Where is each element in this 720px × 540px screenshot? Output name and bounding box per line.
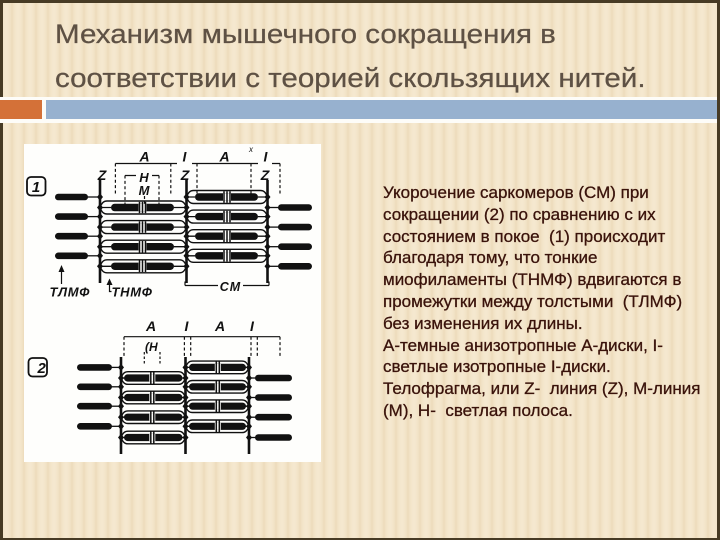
svg-text:I: I — [264, 149, 269, 165]
svg-text:(Н: (Н — [145, 340, 158, 354]
svg-text:x: x — [248, 145, 254, 154]
svg-text:А: А — [218, 149, 229, 165]
svg-text:2: 2 — [37, 360, 47, 377]
svg-text:Z: Z — [97, 167, 107, 183]
svg-text:А: А — [214, 318, 225, 334]
svg-text:ТЛМФ: ТЛМФ — [50, 285, 91, 300]
svg-text:I: I — [250, 318, 255, 334]
svg-text:I: I — [183, 149, 188, 165]
svg-text:М: М — [139, 183, 151, 198]
svg-text:I: I — [185, 318, 190, 334]
svg-text:СМ: СМ — [220, 280, 241, 294]
svg-text:Z: Z — [180, 167, 190, 183]
svg-text:А: А — [145, 318, 156, 334]
svg-text:ТНМФ: ТНМФ — [112, 285, 153, 300]
svg-text:А: А — [138, 149, 149, 165]
svg-text:1: 1 — [32, 179, 40, 196]
